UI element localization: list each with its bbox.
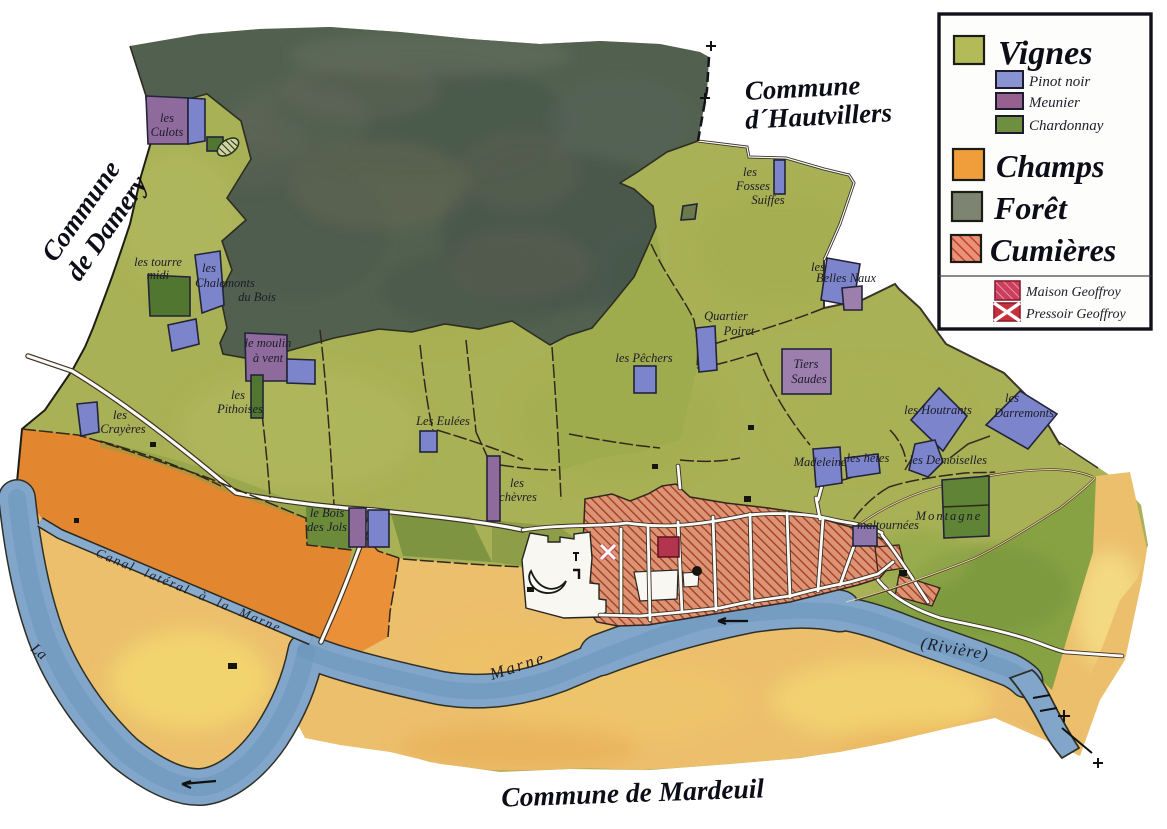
svg-text:des Jols: des Jols bbox=[307, 520, 347, 534]
svg-text:Tiers: Tiers bbox=[793, 357, 818, 371]
svg-text:Pressoir Geoffroy: Pressoir Geoffroy bbox=[1025, 307, 1126, 322]
svg-text:Maison Geoffroy: Maison Geoffroy bbox=[1025, 285, 1122, 300]
svg-text:Montagne: Montagne bbox=[915, 509, 983, 523]
svg-text:à vent: à vent bbox=[253, 351, 284, 365]
svg-text:Quartier: Quartier bbox=[704, 309, 748, 323]
svg-text:Belles Naux: Belles Naux bbox=[816, 271, 877, 285]
svg-text:Saudes: Saudes bbox=[791, 372, 827, 386]
svg-text:Culots: Culots bbox=[151, 125, 184, 139]
svg-text:les: les bbox=[160, 111, 174, 125]
svg-text:Darremonts: Darremonts bbox=[993, 406, 1054, 420]
svg-text:du Bois: du Bois bbox=[238, 290, 276, 304]
svg-text:Les Eulées: Les Eulées bbox=[415, 414, 470, 428]
svg-text:chèvres: chèvres bbox=[499, 490, 537, 504]
svg-text:le Bois: le Bois bbox=[310, 506, 345, 520]
svg-text:les: les bbox=[231, 388, 245, 402]
svg-text:Chardonnay: Chardonnay bbox=[1029, 118, 1104, 134]
svg-text:les: les bbox=[113, 408, 127, 422]
svg-text:le moulin: le moulin bbox=[245, 336, 292, 350]
svg-text:les Pêchers: les Pêchers bbox=[615, 351, 672, 365]
svg-text:Madeleine: Madeleine bbox=[793, 455, 847, 469]
svg-text:Pithoises: Pithoises bbox=[216, 402, 263, 416]
svg-text:Fosses: Fosses bbox=[735, 179, 770, 193]
svg-text:Vignes: Vignes bbox=[998, 35, 1092, 72]
svg-text:Pinot noir: Pinot noir bbox=[1028, 74, 1090, 90]
svg-text:les: les bbox=[202, 261, 216, 275]
svg-text:maltournées: maltournées bbox=[857, 518, 919, 532]
svg-text:les: les bbox=[743, 165, 757, 179]
svg-text:Forêt: Forêt bbox=[993, 190, 1068, 226]
svg-text:Meunier: Meunier bbox=[1028, 95, 1080, 111]
svg-text:les hêtes: les hêtes bbox=[847, 451, 890, 465]
svg-text:Poiret: Poiret bbox=[723, 324, 755, 338]
svg-text:Champs: Champs bbox=[996, 148, 1104, 184]
svg-text:Cumières: Cumières bbox=[990, 232, 1116, 268]
svg-text:les Houtrants: les Houtrants bbox=[904, 403, 972, 417]
svg-text:les tourre: les tourre bbox=[134, 255, 182, 269]
svg-text:Chalemonts: Chalemonts bbox=[195, 276, 255, 290]
svg-text:midi: midi bbox=[147, 268, 170, 282]
svg-text:les: les bbox=[510, 476, 524, 490]
svg-text:Crayères: Crayères bbox=[100, 422, 145, 436]
svg-text:les Demoiselles: les Demoiselles bbox=[909, 453, 987, 467]
svg-text:les: les bbox=[1005, 391, 1019, 405]
svg-text:Suiffes: Suiffes bbox=[751, 193, 784, 207]
